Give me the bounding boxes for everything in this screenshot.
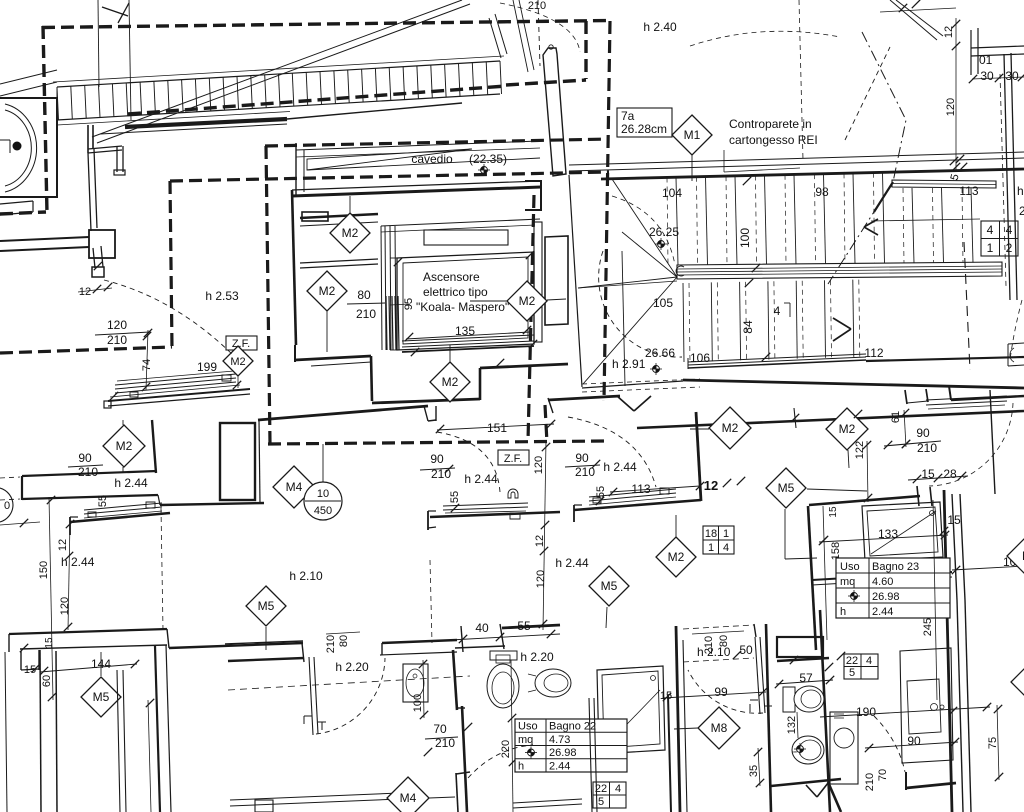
svg-text:26.28cm: 26.28cm: [621, 122, 667, 136]
svg-text:99: 99: [714, 685, 728, 699]
svg-text:5: 5: [598, 796, 604, 808]
svg-text:M5: M5: [778, 481, 795, 495]
svg-text:10: 10: [317, 488, 329, 500]
svg-text:M2: M2: [668, 550, 685, 564]
svg-text:01: 01: [979, 53, 993, 67]
svg-text:55: 55: [517, 619, 531, 633]
svg-text:70: 70: [877, 769, 889, 781]
svg-text:40: 40: [475, 621, 489, 635]
svg-text:120: 120: [107, 318, 127, 332]
svg-text:90: 90: [78, 451, 92, 465]
svg-text:132: 132: [786, 716, 798, 734]
svg-text:113: 113: [959, 184, 978, 198]
svg-text:15: 15: [828, 506, 839, 518]
svg-text:0: 0: [4, 500, 10, 512]
svg-text:1: 1: [708, 542, 714, 554]
svg-text:57: 57: [799, 671, 813, 685]
svg-text:84: 84: [741, 320, 755, 334]
svg-text:210: 210: [917, 441, 937, 455]
svg-text:12: 12: [57, 539, 69, 551]
svg-text:M2: M2: [342, 226, 359, 240]
svg-text:M4: M4: [400, 791, 417, 805]
svg-text:h: h: [840, 606, 846, 618]
svg-text:cm: cm: [792, 749, 798, 754]
svg-text:h 2.91: h 2.91: [612, 357, 646, 371]
svg-text:Z.F.: Z.F.: [504, 453, 522, 465]
svg-text:Uso: Uso: [840, 561, 860, 573]
svg-text:4.60: 4.60: [872, 576, 893, 588]
svg-text:55: 55: [97, 495, 109, 507]
svg-text:2.44: 2.44: [549, 760, 570, 772]
svg-text:210: 210: [325, 635, 337, 653]
svg-text:h 2.40: h 2.40: [643, 20, 677, 34]
svg-text:Bagno 22: Bagno 22: [549, 721, 596, 733]
svg-text:M2: M2: [519, 294, 536, 308]
svg-text:30: 30: [1005, 69, 1019, 83]
svg-text:7a: 7a: [621, 109, 635, 123]
svg-text:2: 2: [1019, 204, 1024, 218]
svg-text:450: 450: [314, 505, 332, 517]
svg-text:245: 245: [922, 618, 934, 636]
svg-text:h 2.10: h 2.10: [289, 569, 323, 583]
svg-text:cartongesso REI: cartongesso REI: [729, 133, 818, 147]
svg-text:100: 100: [738, 228, 752, 248]
svg-text:105: 105: [653, 296, 673, 310]
svg-text:M2: M2: [319, 284, 336, 298]
svg-text:h: h: [518, 760, 524, 772]
svg-text:98: 98: [815, 185, 829, 199]
svg-text:90: 90: [575, 451, 589, 465]
svg-text:h 2.20: h 2.20: [520, 650, 554, 664]
svg-text:190: 190: [856, 705, 876, 719]
svg-text:M2: M2: [230, 356, 245, 368]
svg-text:120: 120: [945, 98, 957, 116]
svg-text:1: 1: [723, 528, 729, 540]
svg-text:28: 28: [943, 467, 957, 481]
svg-text:150: 150: [38, 561, 50, 579]
svg-text:210: 210: [435, 736, 455, 750]
svg-text:4.73: 4.73: [549, 734, 570, 746]
svg-text:106: 106: [690, 351, 710, 365]
svg-text:h: h: [1017, 184, 1024, 198]
svg-text:M1: M1: [684, 128, 701, 142]
svg-text:12: 12: [534, 535, 546, 547]
svg-text:mq: mq: [840, 576, 855, 588]
svg-text:26.98: 26.98: [549, 747, 577, 759]
svg-text:35: 35: [748, 765, 760, 777]
svg-text:h 2.20: h 2.20: [335, 660, 369, 674]
svg-text:1: 1: [987, 241, 994, 255]
svg-text:4: 4: [987, 223, 994, 237]
svg-text:12: 12: [704, 478, 718, 493]
svg-text:120: 120: [535, 570, 547, 588]
svg-text:5: 5: [849, 667, 855, 679]
svg-text:120: 120: [533, 456, 545, 474]
svg-text:cavedio: cavedio: [411, 152, 453, 166]
svg-text:15: 15: [24, 664, 36, 676]
svg-text:70: 70: [433, 722, 447, 736]
svg-text:(22.35): (22.35): [469, 152, 507, 166]
svg-text:M2: M2: [116, 439, 133, 453]
svg-text:18: 18: [705, 528, 717, 540]
svg-text:4: 4: [723, 542, 729, 554]
svg-text:210: 210: [864, 773, 876, 791]
svg-text:80: 80: [338, 635, 350, 647]
svg-text:h 2.44: h 2.44: [114, 476, 148, 490]
svg-text:h 2.44: h 2.44: [555, 556, 589, 570]
svg-text:210: 210: [528, 0, 546, 12]
svg-text:22: 22: [846, 655, 858, 667]
svg-text:210: 210: [356, 307, 376, 321]
svg-text:113: 113: [631, 482, 650, 496]
svg-text:30: 30: [980, 69, 994, 83]
svg-text:112: 112: [864, 346, 883, 360]
svg-text:M2: M2: [722, 421, 739, 435]
svg-text:2.44: 2.44: [872, 606, 893, 618]
svg-text:50: 50: [739, 643, 753, 657]
svg-text:h 2.44: h 2.44: [603, 460, 637, 474]
svg-text:26.25: 26.25: [649, 225, 679, 239]
svg-text:Bagno 23: Bagno 23: [872, 561, 919, 573]
svg-text:"Koala- Maspero": "Koala- Maspero": [416, 300, 509, 314]
svg-text:4: 4: [774, 304, 781, 318]
svg-text:55: 55: [449, 491, 461, 503]
svg-text:26.66: 26.66: [645, 346, 675, 360]
svg-text:80: 80: [357, 288, 371, 302]
svg-text:26.98: 26.98: [872, 591, 900, 603]
svg-text:M2: M2: [442, 375, 459, 389]
svg-text:4: 4: [615, 783, 621, 795]
svg-text:122: 122: [854, 441, 866, 459]
svg-text:151: 151: [487, 421, 507, 435]
svg-text:M5: M5: [601, 579, 618, 593]
svg-text:15: 15: [44, 637, 55, 649]
svg-text:M2: M2: [839, 422, 856, 436]
svg-text:h 2.44: h 2.44: [464, 472, 498, 486]
svg-text:61: 61: [890, 411, 902, 423]
svg-text:Uso: Uso: [518, 721, 538, 733]
svg-text:M8: M8: [711, 721, 728, 735]
svg-text:Ascensore: Ascensore: [423, 270, 480, 284]
svg-text:15: 15: [660, 690, 672, 702]
svg-text:4: 4: [1006, 223, 1013, 237]
svg-text:90: 90: [916, 426, 930, 440]
svg-text:120: 120: [59, 597, 71, 615]
svg-text:90: 90: [430, 452, 444, 466]
svg-text:h 2.44: h 2.44: [61, 555, 95, 569]
svg-text:210: 210: [107, 333, 127, 347]
svg-text:elettrico tipo: elettrico tipo: [423, 285, 488, 299]
svg-text:M4: M4: [286, 480, 303, 494]
svg-text:4: 4: [866, 655, 872, 667]
svg-text:210: 210: [78, 465, 98, 479]
svg-text:h 2.10: h 2.10: [697, 645, 731, 659]
svg-text:75: 75: [987, 737, 999, 749]
svg-text:h 2.53: h 2.53: [205, 289, 239, 303]
svg-text:100: 100: [412, 694, 424, 712]
svg-text:Controparete in: Controparete in: [729, 117, 812, 131]
svg-text:mq: mq: [518, 734, 533, 746]
svg-text:199: 199: [197, 360, 217, 374]
svg-text:60: 60: [41, 675, 53, 687]
svg-text:M5: M5: [258, 599, 275, 613]
svg-text:220: 220: [500, 740, 512, 758]
svg-text:104: 104: [662, 186, 682, 200]
svg-text:90: 90: [907, 734, 921, 748]
svg-text:M5: M5: [93, 690, 110, 704]
